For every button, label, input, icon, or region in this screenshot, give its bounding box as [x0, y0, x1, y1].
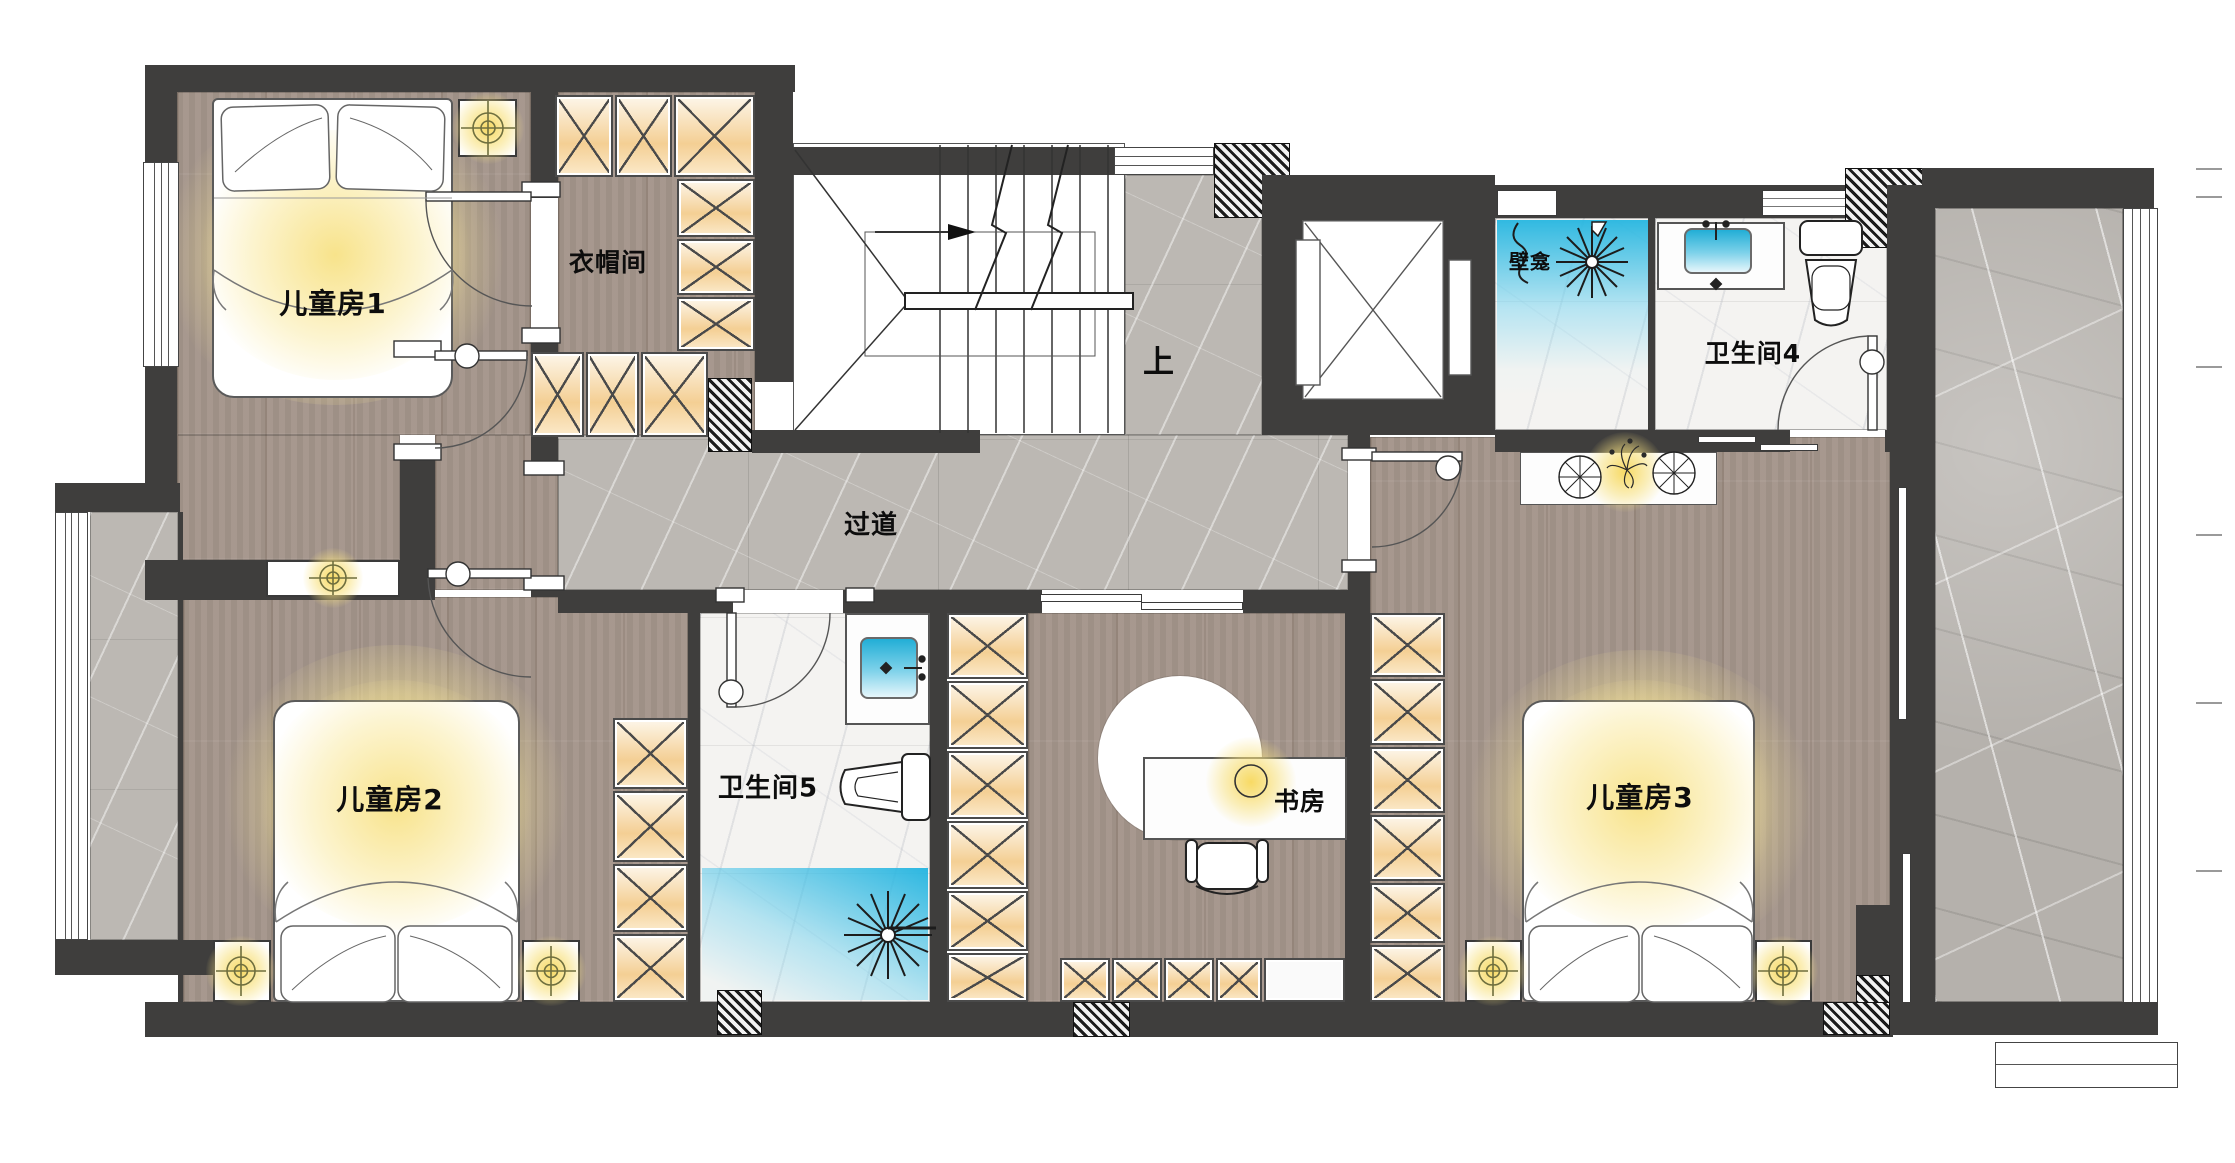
wardrobe-unit — [947, 821, 1028, 889]
dimension-tick — [2196, 168, 2222, 170]
room3-vanity-desk — [1520, 452, 1717, 505]
wardrobe-unit — [1370, 815, 1445, 881]
wall-bath5-top-a — [700, 590, 733, 613]
wardrobe-unit — [586, 352, 639, 437]
wall-bath5-study — [930, 590, 947, 1002]
wall-shower-bath4-divider — [1648, 218, 1655, 430]
wardrobe-unit — [677, 179, 755, 237]
corridor-floor — [558, 435, 1348, 590]
kids-room-1-floor-lower — [177, 435, 400, 560]
room-label-kids-room-2: 儿童房2 — [336, 778, 443, 818]
wardrobe-unit — [1112, 958, 1162, 1002]
window-room1-left — [143, 162, 179, 367]
window-terrace-right — [2123, 208, 2158, 1035]
sliding-shelf-a — [1698, 436, 1756, 443]
bath5-sink — [860, 637, 918, 699]
dimension-tick — [2196, 702, 2222, 704]
wall-room3-se-block — [1856, 905, 1890, 975]
sliding-shelf-b — [1760, 444, 1818, 451]
terrace-floor — [1935, 208, 2123, 1002]
room-label-stairs-up: 上 — [1143, 337, 1175, 382]
room-label-niche: 壁龛 — [1509, 246, 1551, 275]
room-label-bathroom-4: 卫生间4 — [1705, 334, 1801, 370]
wardrobe-unit — [613, 718, 688, 789]
wall-bottom-main — [145, 1002, 1893, 1037]
wardrobe-unit — [947, 891, 1028, 951]
bed-kids-room-3 — [1522, 700, 1755, 1002]
wardrobe-unit — [615, 95, 672, 177]
dimension-tick — [2196, 870, 2222, 872]
elevator-car — [1302, 220, 1444, 400]
niche-shower-recess — [1497, 190, 1557, 216]
nightstand-room3-right — [1755, 940, 1812, 1002]
wall-top-left — [147, 65, 795, 92]
niche-bath4-recess — [1762, 190, 1846, 216]
wall-left-upper — [145, 65, 177, 162]
wardrobe-unit — [1060, 958, 1110, 1002]
wall-corridor-east-a — [1348, 430, 1370, 455]
wardrobe-unit — [1370, 883, 1445, 943]
wall-hatch-stair-sw — [708, 378, 752, 452]
cabinet-open-unit — [1264, 958, 1345, 1002]
dimension-tick — [2196, 534, 2222, 536]
nightstand-room2-right — [522, 940, 580, 1002]
wall-stair-west — [755, 92, 793, 382]
wall-terrace-top — [1922, 168, 2154, 208]
wardrobe-unit — [1370, 613, 1445, 677]
room-label-kids-room-1: 儿童房1 — [279, 282, 386, 322]
ceiling-light-box-room1 — [458, 99, 517, 157]
window-stair-top — [1114, 147, 1214, 175]
wardrobe-unit — [531, 352, 584, 437]
room-label-study: 书房 — [1274, 782, 1326, 818]
bed-kids-room-1 — [212, 98, 453, 398]
room-label-cloakroom: 衣帽间 — [569, 243, 647, 279]
wall-cloakroom-west-b — [531, 333, 558, 352]
wall-study-east — [1345, 613, 1370, 1002]
wardrobe-unit — [1370, 945, 1445, 1002]
wardrobe-unit — [947, 953, 1028, 1002]
wardrobe-unit — [674, 95, 755, 177]
wardrobe-unit — [677, 297, 755, 351]
wall-hatch-bottom-c — [1823, 1002, 1890, 1035]
wardrobe-unit — [947, 613, 1028, 679]
room-label-corridor: 过道 — [844, 505, 898, 542]
bed-kids-room-2 — [273, 700, 520, 1002]
wall-corridor-south-w — [558, 590, 700, 613]
wall-stair-south — [752, 430, 980, 453]
nightstand-room2-left — [213, 940, 271, 1002]
wall-room3-north-e — [1885, 430, 1930, 452]
room-label-bathroom-5: 卫生间5 — [718, 768, 818, 805]
wall-room3-east — [1890, 450, 1935, 1002]
wardrobe-unit — [641, 352, 708, 437]
study-sliding-door-panel-b — [1141, 602, 1243, 610]
window-terrace-bottom — [1995, 1042, 2178, 1088]
nightstand-room3-left — [1465, 940, 1522, 1002]
wall-stair-top — [788, 147, 1114, 175]
wall-bath4-east — [1887, 185, 1935, 452]
wall-cloakroom-west-a — [531, 65, 558, 198]
wall-hatch-bottom-b — [1073, 1002, 1130, 1037]
wardrobe-unit — [1370, 747, 1445, 813]
wall-light-box — [266, 560, 400, 597]
wardrobe-unit — [947, 681, 1028, 749]
wall-cloakroom-west-c — [531, 437, 558, 473]
wardrobe-unit — [1370, 679, 1445, 745]
wardrobe-unit — [613, 934, 688, 1002]
wardrobe-unit — [555, 95, 613, 177]
wall-room2-bath5 — [688, 597, 700, 1002]
wardrobe-unit — [677, 239, 755, 295]
window-balcony-left — [55, 512, 88, 940]
wall-study-top-b — [1243, 590, 1348, 613]
wardrobe-unit — [613, 791, 688, 862]
room3-terrace-door-slit-b — [1902, 853, 1911, 1003]
wardrobe-unit — [1216, 958, 1262, 1002]
room3-terrace-door-slit-a — [1898, 487, 1907, 720]
wall-bath5-top-b — [843, 590, 930, 613]
floor-plan: 儿童房1 衣帽间 上 壁龛 卫生间4 过道 儿童房2 卫生间5 书房 儿童房3 — [0, 0, 2235, 1163]
study-sliding-door-panel-a — [1040, 594, 1142, 602]
room-label-kids-room-3: 儿童房3 — [1586, 776, 1693, 816]
wall-corridor-east-b — [1348, 570, 1370, 613]
wardrobe-unit — [613, 864, 688, 932]
wall-cloakroom-west-d — [531, 580, 558, 597]
dimension-tick — [2196, 196, 2222, 198]
wall-left-jog — [55, 483, 180, 512]
wardrobe-unit — [947, 751, 1028, 819]
wall-terrace-bottom — [1890, 1002, 2158, 1035]
wardrobe-unit — [1164, 958, 1214, 1002]
stairwell-floor — [793, 143, 1125, 435]
wall-hatch-bottom-a — [717, 990, 762, 1035]
dimension-tick — [2196, 366, 2222, 368]
bath4-sink — [1684, 228, 1752, 274]
